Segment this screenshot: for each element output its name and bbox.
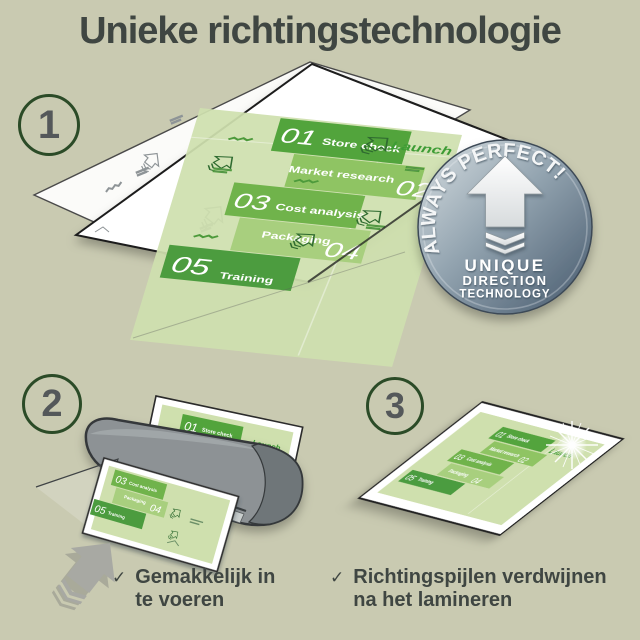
checklist-arrows-line1: Richtingspijlen verdwijnen <box>353 566 606 589</box>
step-1-number: 1 <box>38 103 60 148</box>
band-04-num: 04 <box>321 238 363 264</box>
band-01-num: 01 <box>278 124 320 150</box>
checkmark-icon: ✓ <box>330 566 344 612</box>
step-2-number: 2 <box>41 383 62 426</box>
tiny-caption <box>170 115 184 124</box>
always-perfect-badge: ALWAYS PERFECT! UNIQUE DIRECTION TECHNOL… <box>418 140 592 314</box>
step-1-circle: 1 <box>18 94 80 156</box>
checklist-arrows-line2: na het lamineren <box>353 589 606 612</box>
checkmark-icon: ✓ <box>112 566 126 612</box>
band-03-num: 03 <box>231 189 273 215</box>
step-2-circle: 2 <box>22 374 82 434</box>
step-3-circle: 3 <box>366 377 424 435</box>
checklist-easy-line2: te voeren <box>135 589 275 612</box>
step-3-number: 3 <box>385 385 405 427</box>
checklist-item-easy-feed: ✓ Gemakkelijk in te voeren <box>112 566 275 612</box>
illustration-scene: 01 Store check Market research 02 03 Cos… <box>0 0 640 640</box>
page-title: Unieke richtingstechnologie <box>0 10 640 53</box>
badge-line2: DIRECTION <box>463 273 548 288</box>
checklist-easy-line1: Gemakkelijk in <box>135 566 275 589</box>
checklist-item-arrows-disappear: ✓ Richtingspijlen verdwijnen na het lami… <box>330 566 607 612</box>
badge-line3: TECHNOLOGY <box>459 289 550 301</box>
